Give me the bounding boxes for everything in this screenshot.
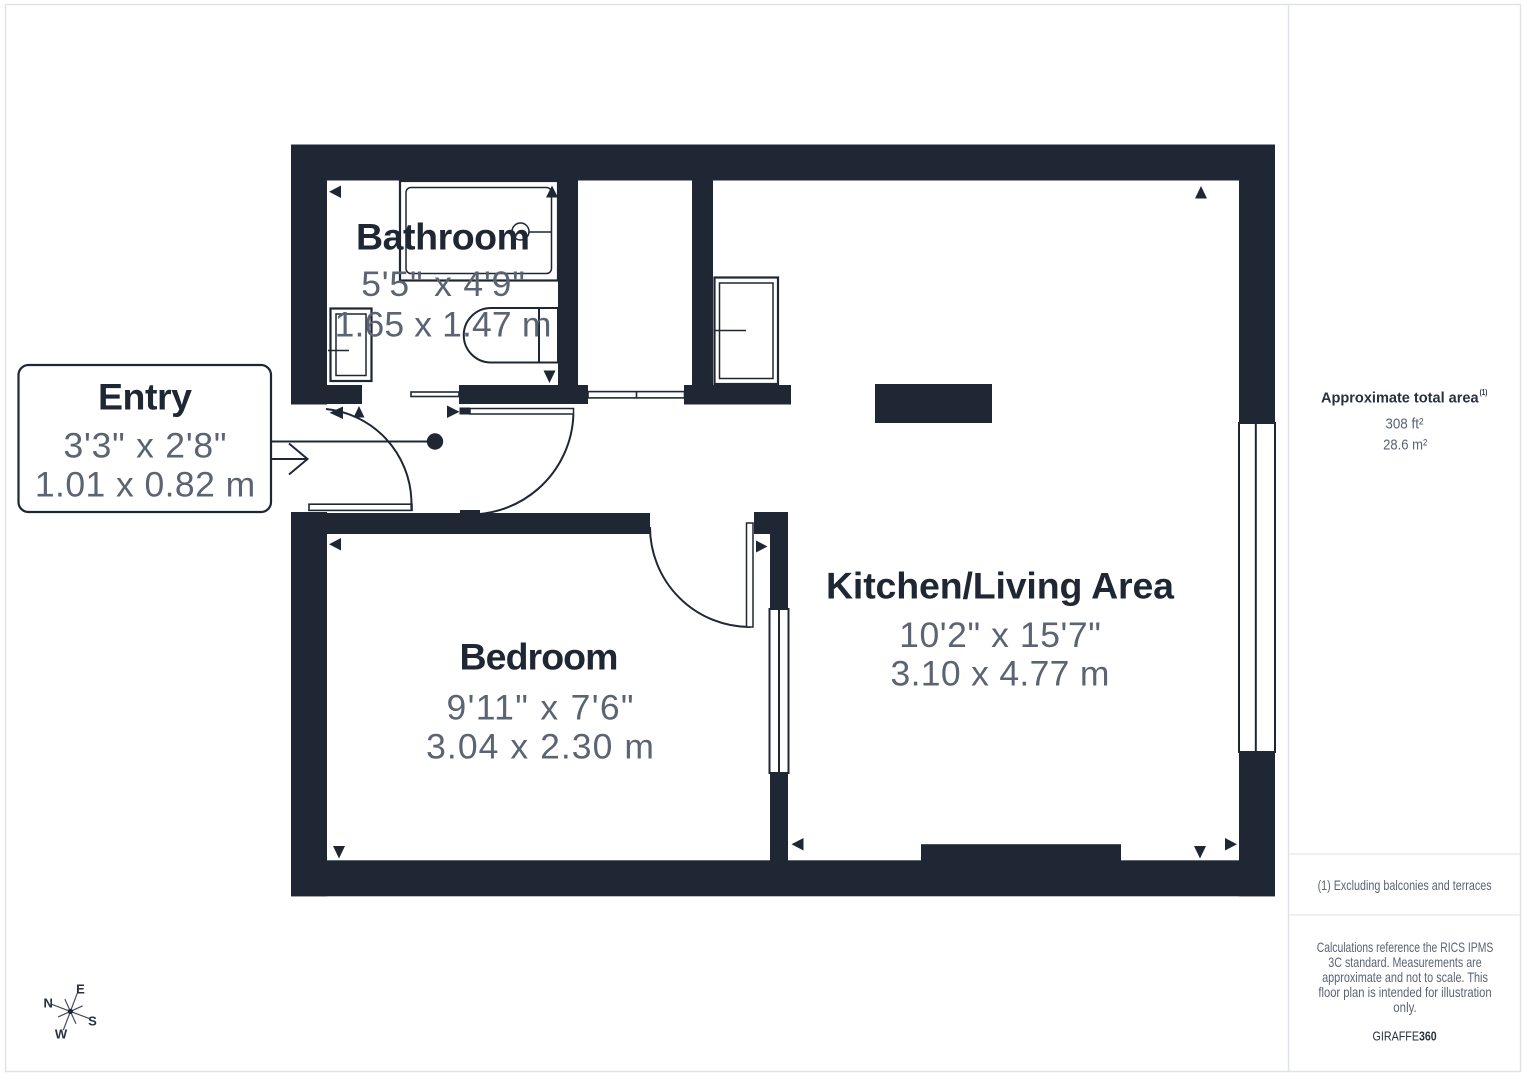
- svg-text:3'3" x 2'8": 3'3" x 2'8": [64, 426, 227, 466]
- svg-text:S: S: [88, 1014, 97, 1029]
- svg-text:3C standard. Measurements are: 3C standard. Measurements are: [1328, 955, 1481, 970]
- svg-text:E: E: [76, 982, 85, 997]
- svg-text:Bedroom: Bedroom: [460, 636, 619, 678]
- svg-text:Approximate total area: Approximate total area: [1321, 389, 1479, 406]
- svg-text:Bathroom: Bathroom: [356, 215, 530, 257]
- svg-text:N: N: [44, 996, 53, 1011]
- svg-text:1.01 x 0.82 m: 1.01 x 0.82 m: [35, 465, 255, 505]
- svg-text:360: 360: [1419, 1028, 1437, 1043]
- svg-text:Calculations reference the RIC: Calculations reference the RICS IPMS: [1317, 940, 1494, 955]
- svg-text:3.10 x 4.77 m: 3.10 x 4.77 m: [891, 654, 1110, 694]
- svg-text:W: W: [55, 1027, 68, 1042]
- svg-text:(1): (1): [1480, 387, 1488, 397]
- svg-text:approximate and not to scale.: approximate and not to scale. This: [1322, 970, 1488, 985]
- svg-text:Entry: Entry: [98, 375, 192, 417]
- svg-text:only.: only.: [1393, 1000, 1416, 1015]
- svg-text:308 ft²: 308 ft²: [1385, 416, 1423, 433]
- svg-text:GIRAFFE: GIRAFFE: [1373, 1028, 1420, 1043]
- svg-text:10'2" x 15'7": 10'2" x 15'7": [899, 615, 1101, 655]
- svg-text:(1) Excluding balconies and te: (1) Excluding balconies and terraces: [1318, 878, 1492, 893]
- svg-text:3.04 x 2.30 m: 3.04 x 2.30 m: [426, 727, 654, 767]
- svg-text:1.65 x 1.47 m: 1.65 x 1.47 m: [335, 305, 552, 345]
- svg-text:9'11" x 7'6": 9'11" x 7'6": [447, 687, 634, 727]
- svg-text:5'5" x 4'9": 5'5" x 4'9": [361, 264, 525, 304]
- svg-text:Kitchen/Living Area: Kitchen/Living Area: [826, 565, 1175, 607]
- svg-text:floor plan is intended for ill: floor plan is intended for illustration: [1318, 985, 1491, 1000]
- svg-text:28.6 m²: 28.6 m²: [1383, 437, 1427, 454]
